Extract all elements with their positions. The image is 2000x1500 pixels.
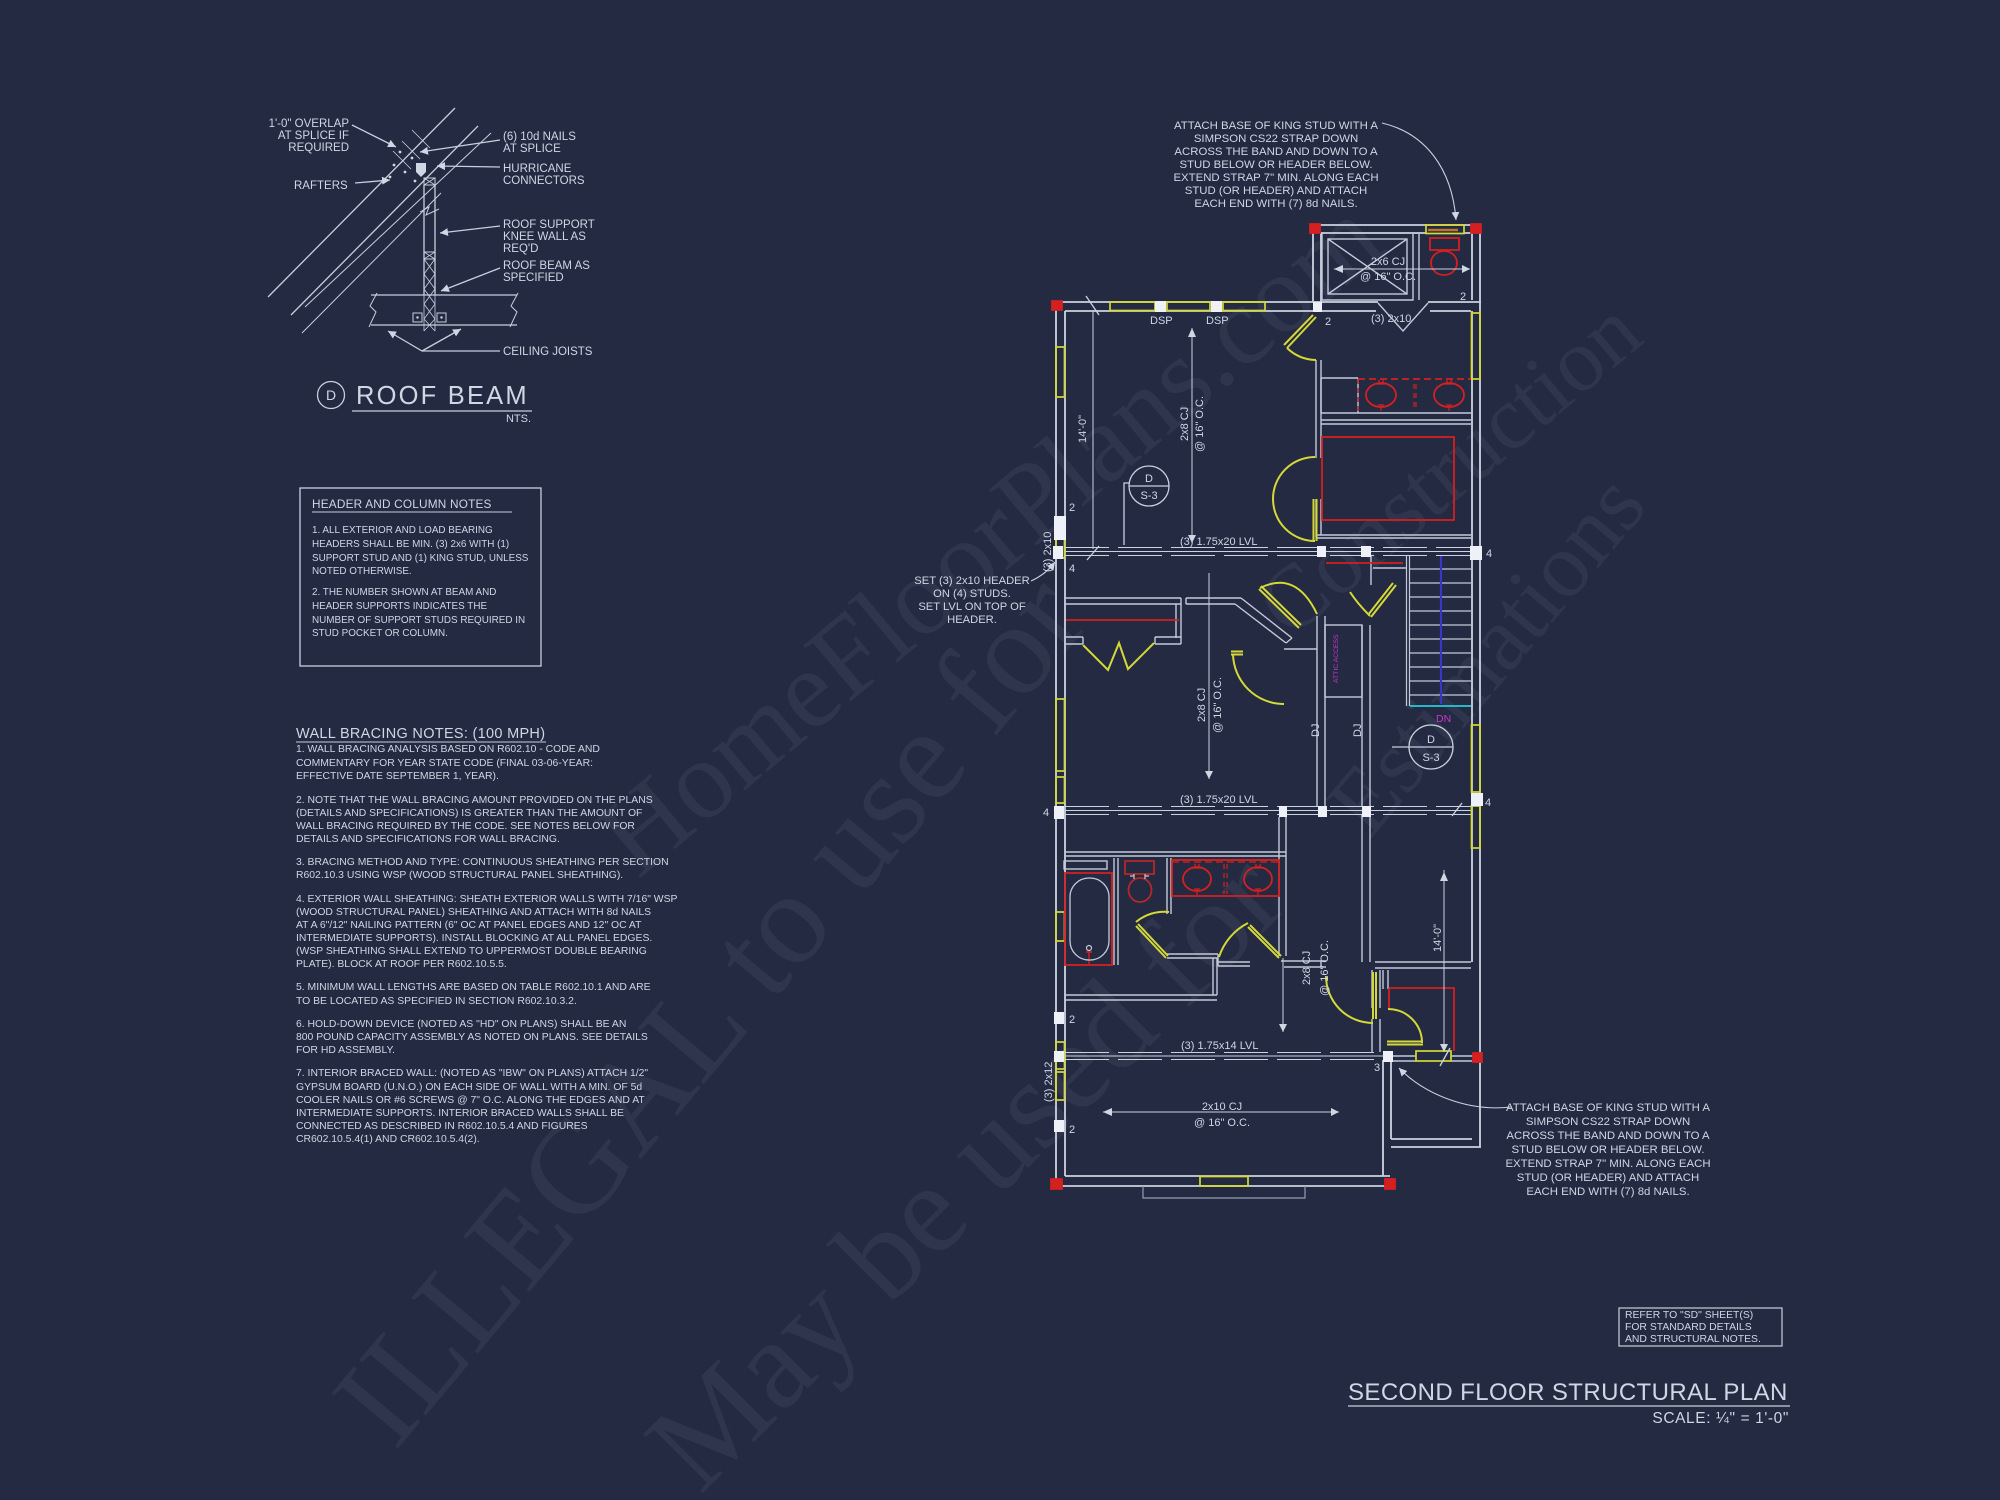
svg-text:(3) 2x12: (3) 2x12 [1043,1062,1055,1102]
svg-text:REQ'D: REQ'D [503,243,538,255]
svg-text:REFER TO "SD" SHEET(S): REFER TO "SD" SHEET(S) [1625,1310,1753,1321]
svg-text:4: 4 [1485,797,1491,809]
svg-text:(3) 2x10: (3) 2x10 [1371,313,1411,325]
svg-text:DJ: DJ [1310,724,1322,737]
svg-text:HEADER SUPPORTS INDICATES THE: HEADER SUPPORTS INDICATES THE [312,601,487,612]
svg-text:@ 16" O.C.: @ 16" O.C. [1212,677,1224,733]
svg-text:STUD BELOW OR HEADER BELOW.: STUD BELOW OR HEADER BELOW. [1179,159,1372,171]
svg-text:SIMPSON CS22 STRAP DOWN: SIMPSON CS22 STRAP DOWN [1194,133,1358,145]
svg-text:HURRICANE: HURRICANE [503,163,572,175]
svg-text:GYPSUM BOARD (U.N.O.) ON EACH: GYPSUM BOARD (U.N.O.) ON EACH SIDE OF WA… [296,1082,642,1093]
svg-text:1. WALL BRACING ANALYSIS BASED: 1. WALL BRACING ANALYSIS BASED ON R602.1… [296,744,600,755]
svg-text:AT A 6"/12" NAILING PATTERN (6: AT A 6"/12" NAILING PATTERN (6" OC AT PA… [296,920,642,931]
svg-text:SET LVL ON TOP OF: SET LVL ON TOP OF [918,601,1026,613]
svg-text:2x6 CJ: 2x6 CJ [1371,256,1405,268]
svg-text:STUD (OR HEADER) AND ATTACH: STUD (OR HEADER) AND ATTACH [1185,185,1367,197]
svg-text:ACROSS THE BAND AND DOWN TO A: ACROSS THE BAND AND DOWN TO A [1174,146,1378,158]
svg-text:DSP: DSP [1150,315,1173,327]
svg-text:AT SPLICE IF: AT SPLICE IF [278,130,349,142]
svg-text:1'-0" OVERLAP: 1'-0" OVERLAP [269,118,350,130]
svg-text:COOLER NAILS OR #6 SCREWS @ 7": COOLER NAILS OR #6 SCREWS @ 7" O.C. ALON… [296,1095,645,1106]
svg-text:SUPPORT STUD AND (1) KING STUD: SUPPORT STUD AND (1) KING STUD, UNLESS [312,553,529,564]
svg-text:6. HOLD-DOWN DEVICE (NOTED AS: 6. HOLD-DOWN DEVICE (NOTED AS "HD" ON PL… [296,1019,626,1030]
svg-text:ATTACH BASE OF KING STUD WITH: ATTACH BASE OF KING STUD WITH A [1506,1102,1710,1114]
svg-text:SECOND FLOOR STRUCTURAL PLAN: SECOND FLOOR STRUCTURAL PLAN [1348,1379,1788,1406]
svg-text:D: D [326,387,336,403]
svg-text:3: 3 [1374,1062,1380,1074]
svg-text:FOR HD ASSEMBLY.: FOR HD ASSEMBLY. [296,1045,395,1056]
svg-text:(WOOD STRUCTURAL PANEL) SHEATH: (WOOD STRUCTURAL PANEL) SHEATHING AND AT… [296,907,651,918]
svg-text:2: 2 [1460,291,1466,303]
svg-text:ROOF SUPPORT: ROOF SUPPORT [503,219,595,231]
svg-text:2: 2 [1325,316,1331,328]
svg-text:@ 16" O.C.: @ 16" O.C. [1319,940,1331,996]
svg-text:HEADERS SHALL BE MIN. (3) 2x6: HEADERS SHALL BE MIN. (3) 2x6 WITH (1) [312,539,509,550]
svg-text:PLATE). BLOCK AT ROOF PER R602: PLATE). BLOCK AT ROOF PER R602.10.5.5. [296,959,507,970]
svg-text:INTERMEDIATE SUPPORTS). INSTAL: INTERMEDIATE SUPPORTS). INSTALL BLOCKING… [296,933,652,944]
svg-text:SCALE: ¼" = 1'-0": SCALE: ¼" = 1'-0" [1652,1410,1789,1427]
svg-text:5. MINIMUM WALL LENGTHS ARE BA: 5. MINIMUM WALL LENGTHS ARE BASED ON TAB… [296,982,651,993]
svg-text:R602.10.3 USING WSP (WOOD STRU: R602.10.3 USING WSP (WOOD STRUCTURAL PAN… [296,870,623,881]
svg-text:SET (3) 2x10 HEADER: SET (3) 2x10 HEADER [914,575,1029,587]
svg-text:TO BE LOCATED AS SPECIFIED IN: TO BE LOCATED AS SPECIFIED IN SECTION R6… [296,996,577,1007]
svg-text:7. INTERIOR BRACED WALL: (NOTE: 7. INTERIOR BRACED WALL: (NOTED AS "IBW"… [296,1068,648,1079]
svg-text:SIMPSON CS22 STRAP DOWN: SIMPSON CS22 STRAP DOWN [1526,1116,1690,1128]
svg-text:NTS.: NTS. [506,413,531,425]
svg-text:CEILING JOISTS: CEILING JOISTS [503,346,593,358]
svg-text:STUD BELOW OR HEADER BELOW.: STUD BELOW OR HEADER BELOW. [1511,1144,1704,1156]
svg-text:STUD (OR HEADER) AND ATTACH: STUD (OR HEADER) AND ATTACH [1517,1172,1699,1184]
svg-text:KNEE WALL AS: KNEE WALL AS [503,231,586,243]
svg-text:ROOF BEAM: ROOF BEAM [356,382,529,410]
svg-text:EXTEND STRAP 7" MIN. ALONG EAC: EXTEND STRAP 7" MIN. ALONG EACH [1505,1158,1710,1170]
svg-text:2x8 CJ: 2x8 CJ [1196,688,1208,722]
svg-text:DETAILS AND SPECIFICATIONS FOR: DETAILS AND SPECIFICATIONS FOR WALL BRAC… [296,834,560,845]
svg-text:CONNECTORS: CONNECTORS [503,175,585,187]
svg-text:D: D [1427,734,1435,746]
svg-text:REQUIRED: REQUIRED [288,142,349,154]
svg-text:(3) 1.75x14 LVL: (3) 1.75x14 LVL [1181,1040,1258,1052]
svg-text:4. EXTERIOR WALL SHEATHING: SH: 4. EXTERIOR WALL SHEATHING: SHEATH EXTER… [296,894,678,905]
svg-text:WALL BRACING REQUIRED BY THE C: WALL BRACING REQUIRED BY THE CODE. SEE N… [296,821,635,832]
svg-text:(3) 1.75x20 LVL: (3) 1.75x20 LVL [1180,794,1257,806]
svg-text:4: 4 [1486,548,1492,560]
svg-text:4: 4 [1043,807,1049,819]
svg-text:AND STRUCTURAL NOTES.: AND STRUCTURAL NOTES. [1625,1334,1761,1345]
svg-text:@ 16" O.C.: @ 16" O.C. [1360,271,1416,283]
svg-text:DN: DN [1436,713,1451,725]
svg-text:14'-0": 14'-0" [1077,415,1089,443]
svg-text:2: 2 [1069,1014,1075,1026]
svg-text:2x8 CJ: 2x8 CJ [1301,951,1313,985]
svg-text:(DETAILS AND SPECIFICATIONS) I: (DETAILS AND SPECIFICATIONS) IS GREATER … [296,808,642,819]
svg-text:S-3: S-3 [1140,490,1157,502]
svg-text:1. ALL EXTERIOR AND LOAD BEARI: 1. ALL EXTERIOR AND LOAD BEARING [312,525,493,536]
svg-text:HEADER.: HEADER. [947,614,997,626]
svg-text:HEADER AND COLUMN NOTES: HEADER AND COLUMN NOTES [312,497,492,511]
svg-text:NUMBER OF SUPPORT STUDS REQUIR: NUMBER OF SUPPORT STUDS REQUIRED IN [312,615,525,626]
svg-text:2: 2 [1069,502,1075,514]
svg-text:ATTIC ACCESS: ATTIC ACCESS [1333,634,1340,683]
svg-text:ON (4) STUDS.: ON (4) STUDS. [933,588,1011,600]
svg-text:2. THE NUMBER SHOWN AT BEAM AN: 2. THE NUMBER SHOWN AT BEAM AND [312,587,496,598]
svg-text:STUD POCKET OR COLUMN.: STUD POCKET OR COLUMN. [312,628,448,639]
svg-text:COMMENTARY FOR YEAR STATE CODE: COMMENTARY FOR YEAR STATE CODE (FINAL 03… [296,758,593,769]
svg-text:D: D [1145,473,1153,485]
svg-text:HomeFloorPlans.com: HomeFloorPlans.com [574,174,1404,899]
svg-text:(6) 10d NAILS: (6) 10d NAILS [503,131,576,143]
svg-text:EACH END WITH (7) 8d NAILS.: EACH END WITH (7) 8d NAILS. [1526,1186,1689,1198]
svg-text:800 POUND CAPACITY ASSEMBLY AS: 800 POUND CAPACITY ASSEMBLY AS NOTED ON … [296,1032,648,1043]
svg-text:2. NOTE THAT THE WALL BRACING: 2. NOTE THAT THE WALL BRACING AMOUNT PRO… [296,795,653,806]
svg-text:14'-0": 14'-0" [1432,924,1444,952]
svg-text:ATTACH BASE OF KING STUD WITH: ATTACH BASE OF KING STUD WITH A [1174,120,1378,132]
svg-text:SPECIFIED: SPECIFIED [503,272,564,284]
svg-text:WALL BRACING NOTES: (100 MPH): WALL BRACING NOTES: (100 MPH) [296,726,545,742]
svg-text:4: 4 [1069,563,1075,575]
svg-text:2: 2 [1069,1124,1075,1136]
svg-text:2x10 CJ: 2x10 CJ [1202,1101,1242,1113]
svg-text:CONNECTED AS DESCRIBED IN R602: CONNECTED AS DESCRIBED IN R602.10.5.4 AN… [296,1121,588,1132]
svg-text:DJ: DJ [1352,724,1364,737]
svg-text:NOTED OTHERWISE.: NOTED OTHERWISE. [312,566,412,577]
svg-text:ROOF BEAM AS: ROOF BEAM AS [503,260,590,272]
svg-text:EACH END WITH (7) 8d NAILS.: EACH END WITH (7) 8d NAILS. [1194,198,1357,210]
svg-text:@ 16" O.C.: @ 16" O.C. [1194,396,1206,452]
svg-text:CR602.10.5.4(1) AND CR602.10.5: CR602.10.5.4(1) AND CR602.10.5.4(2). [296,1134,480,1145]
svg-text:EXTEND STRAP 7" MIN. ALONG EAC: EXTEND STRAP 7" MIN. ALONG EACH [1173,172,1378,184]
svg-text:RAFTERS: RAFTERS [294,180,348,192]
svg-text:DSP: DSP [1206,315,1229,327]
svg-text:S-3: S-3 [1422,752,1439,764]
svg-text:ACROSS THE BAND AND DOWN TO A: ACROSS THE BAND AND DOWN TO A [1506,1130,1710,1142]
svg-text:3. BRACING METHOD AND TYPE: CO: 3. BRACING METHOD AND TYPE: CONTINUOUS S… [296,857,669,868]
svg-text:(WSP SHEATHING SHALL EXTEND TO: (WSP SHEATHING SHALL EXTEND TO UPPERMOST… [296,946,647,957]
svg-text:@ 16" O.C.: @ 16" O.C. [1194,1117,1250,1129]
svg-text:AT SPLICE: AT SPLICE [503,143,561,155]
svg-text:INTERMEDIATE SUPPORTS. INTERI: INTERMEDIATE SUPPORTS. INTERIOR BRACED W… [296,1108,624,1119]
svg-text:FOR STANDARD DETAILS: FOR STANDARD DETAILS [1625,1322,1752,1333]
svg-text:EFFECTIVE DATE SEPTEMBER 1, YE: EFFECTIVE DATE SEPTEMBER 1, YEAR). [296,771,499,782]
svg-text:2x8 CJ: 2x8 CJ [1179,407,1191,441]
